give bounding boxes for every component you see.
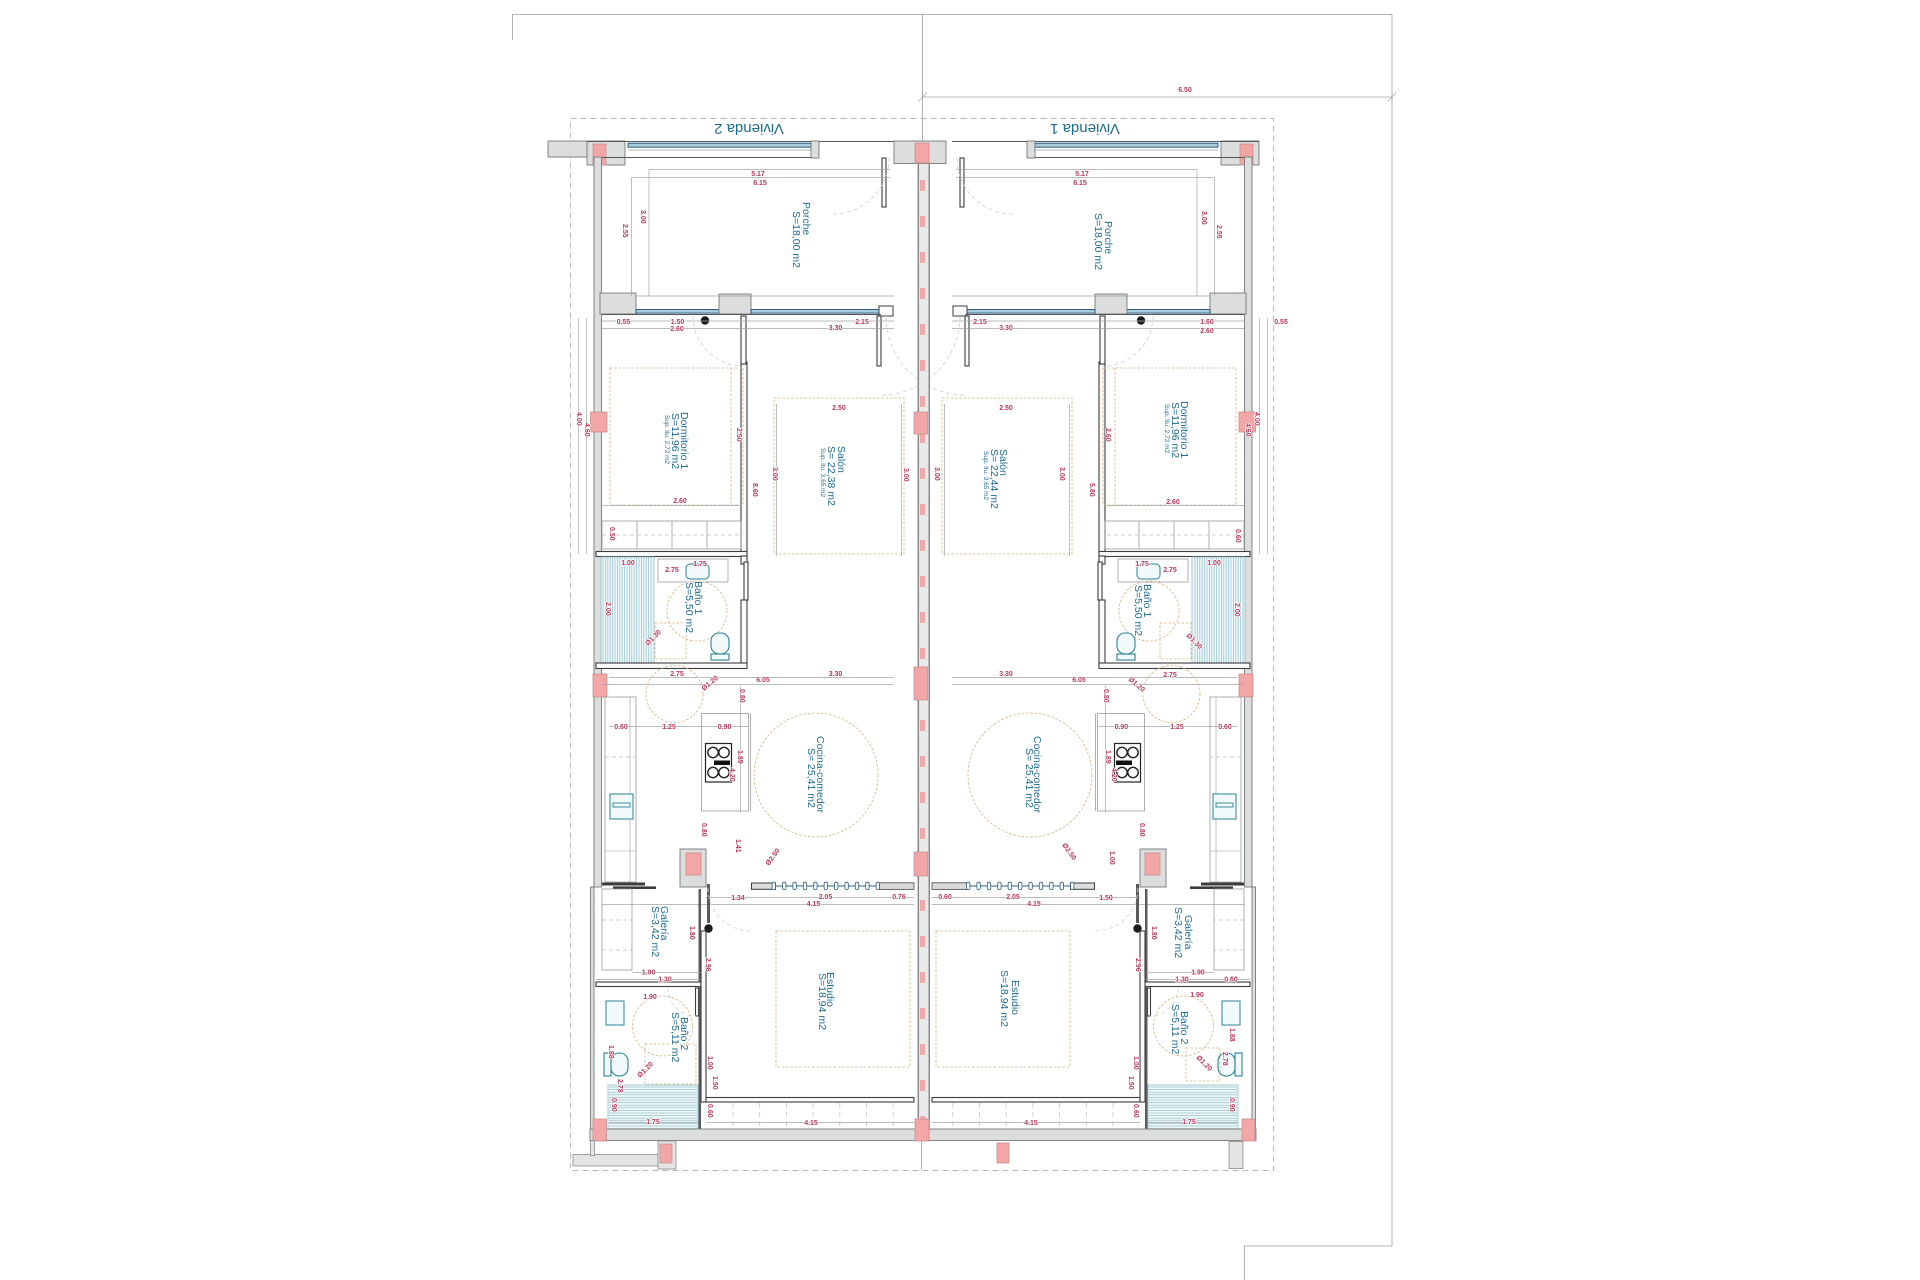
svg-text:5.17: 5.17: [751, 171, 765, 178]
svg-text:Sup. Ilu. 2,72 m2: Sup. Ilu. 2,72 m2: [663, 415, 670, 465]
svg-text:1.88: 1.88: [1228, 1028, 1235, 1042]
svg-text:Vivienda 1: Vivienda 1: [1050, 120, 1120, 137]
svg-text:0.90: 0.90: [1115, 724, 1129, 731]
svg-text:2.60: 2.60: [673, 498, 687, 505]
svg-text:2.75: 2.75: [670, 671, 684, 678]
svg-text:2.00: 2.00: [604, 602, 611, 616]
svg-text:S=5,50 m2: S=5,50 m2: [683, 582, 695, 633]
svg-text:6.05: 6.05: [1072, 677, 1086, 684]
svg-text:Vivienda 2: Vivienda 2: [714, 120, 784, 137]
svg-text:2.15: 2.15: [973, 319, 987, 326]
svg-text:3.30: 3.30: [999, 325, 1013, 332]
svg-text:0.76: 0.76: [892, 894, 906, 901]
svg-text:Sup. Ilu. 2,72 m2: Sup. Ilu. 2,72 m2: [1163, 404, 1170, 454]
svg-text:0.60: 0.60: [614, 724, 628, 731]
svg-text:1.75: 1.75: [1182, 1119, 1196, 1126]
svg-text:1.30: 1.30: [1175, 977, 1189, 984]
svg-text:2.60: 2.60: [1200, 328, 1214, 335]
svg-text:1.25: 1.25: [662, 724, 676, 731]
svg-text:1.00: 1.00: [621, 560, 635, 567]
svg-text:S=3,42 m2: S=3,42 m2: [1172, 907, 1184, 958]
svg-text:S= 25,41 m2: S= 25,41 m2: [805, 748, 817, 808]
svg-text:1.90: 1.90: [1190, 992, 1204, 999]
svg-text:S=3,42 m2: S=3,42 m2: [649, 906, 661, 957]
svg-text:3.00: 3.00: [933, 467, 940, 481]
svg-text:4.60: 4.60: [1244, 423, 1251, 437]
svg-text:6.15: 6.15: [1073, 180, 1087, 187]
svg-text:2.60: 2.60: [670, 326, 684, 333]
svg-text:2.60: 2.60: [1166, 499, 1180, 506]
svg-text:0.60: 0.60: [1224, 977, 1238, 984]
svg-text:1.75: 1.75: [646, 1119, 660, 1126]
svg-text:1.00: 1.00: [1207, 560, 1221, 567]
svg-text:2.50: 2.50: [735, 428, 742, 442]
svg-text:0.50: 0.50: [608, 527, 615, 541]
svg-text:Sup. Ilu. 3,65 m2: Sup. Ilu. 3,65 m2: [819, 448, 826, 498]
svg-text:2.75: 2.75: [665, 567, 679, 574]
svg-text:1.00: 1.00: [706, 1056, 713, 1070]
svg-text:8.60: 8.60: [751, 483, 758, 497]
svg-text:S=18,00 m2: S=18,00 m2: [1092, 213, 1104, 270]
svg-text:4.00: 4.00: [1253, 412, 1260, 426]
svg-text:0.80: 0.80: [700, 823, 707, 837]
svg-text:0.80: 0.80: [1102, 689, 1109, 703]
svg-text:0.90: 0.90: [1228, 1098, 1235, 1112]
svg-text:1.25: 1.25: [1170, 724, 1184, 731]
svg-text:S=18,94 m2: S=18,94 m2: [998, 970, 1010, 1027]
svg-text:2.00: 2.00: [1233, 603, 1240, 617]
svg-text:4.60: 4.60: [583, 423, 590, 437]
svg-text:4.20: 4.20: [728, 768, 735, 782]
svg-text:4.20: 4.20: [1110, 768, 1117, 782]
svg-text:5.80: 5.80: [1088, 483, 1095, 497]
svg-text:0.90: 0.90: [610, 1098, 617, 1112]
svg-text:3.00: 3.00: [902, 468, 909, 482]
svg-text:1.34: 1.34: [731, 895, 745, 902]
svg-text:0.60: 0.60: [1218, 724, 1232, 731]
svg-text:1.90: 1.90: [642, 970, 656, 977]
svg-text:3.30: 3.30: [999, 671, 1013, 678]
svg-text:2.50: 2.50: [832, 405, 846, 412]
svg-text:2.55: 2.55: [1215, 225, 1222, 239]
svg-text:1.90: 1.90: [643, 994, 657, 1001]
svg-text:S=5,11 m2: S=5,11 m2: [669, 1012, 681, 1062]
svg-text:0.80: 0.80: [1138, 823, 1145, 837]
svg-text:3.30: 3.30: [829, 325, 843, 332]
svg-text:0.60: 0.60: [1234, 529, 1241, 543]
svg-text:1.80: 1.80: [1150, 926, 1157, 940]
svg-text:6.15: 6.15: [753, 180, 767, 187]
svg-text:S=5,11 m2: S=5,11 m2: [1169, 1004, 1181, 1054]
svg-text:1.89: 1.89: [1104, 750, 1111, 764]
svg-text:0.90: 0.90: [718, 724, 732, 731]
svg-text:2.96: 2.96: [1134, 958, 1141, 972]
svg-text:4.00: 4.00: [575, 412, 582, 426]
svg-text:S=18,00 m2: S=18,00 m2: [790, 211, 802, 268]
svg-text:4.15: 4.15: [1027, 901, 1041, 908]
svg-text:2.78: 2.78: [616, 1079, 623, 1093]
svg-text:1.75: 1.75: [1135, 561, 1149, 568]
svg-text:1.60: 1.60: [1200, 319, 1214, 326]
svg-text:1.89: 1.89: [736, 750, 743, 764]
svg-text:0.60: 0.60: [706, 1104, 713, 1118]
svg-text:0.60: 0.60: [1132, 1104, 1139, 1118]
svg-text:2.55: 2.55: [621, 224, 628, 238]
svg-text:4.15: 4.15: [804, 1120, 818, 1127]
svg-text:3.00: 3.00: [1200, 211, 1207, 225]
svg-text:0.55: 0.55: [1274, 319, 1288, 326]
svg-text:1.00: 1.00: [1108, 851, 1115, 865]
svg-text:S= 25,41 m2: S= 25,41 m2: [1023, 748, 1035, 808]
svg-text:1.90: 1.90: [1191, 970, 1205, 977]
svg-text:1.50: 1.50: [671, 319, 685, 326]
svg-text:2.05: 2.05: [819, 894, 833, 901]
svg-text:3.00: 3.00: [1058, 467, 1065, 481]
svg-text:6.05: 6.05: [756, 677, 770, 684]
svg-text:4.15: 4.15: [1024, 1120, 1038, 1127]
svg-text:0.55: 0.55: [617, 319, 631, 326]
svg-text:5.17: 5.17: [1075, 171, 1089, 178]
svg-text:1.80: 1.80: [688, 926, 695, 940]
svg-text:2.78: 2.78: [1221, 1052, 1228, 1066]
svg-text:1.00: 1.00: [1132, 1056, 1139, 1070]
svg-text:1.30: 1.30: [658, 977, 672, 984]
svg-text:1.88: 1.88: [607, 1045, 614, 1059]
svg-text:2.96: 2.96: [704, 958, 711, 972]
svg-text:2.50: 2.50: [999, 405, 1013, 412]
svg-text:0.80: 0.80: [738, 689, 745, 703]
svg-text:1.50: 1.50: [1127, 1076, 1134, 1090]
svg-text:2.15: 2.15: [855, 319, 869, 326]
svg-text:2.75: 2.75: [1163, 567, 1177, 574]
svg-text:2.05: 2.05: [1006, 894, 1020, 901]
svg-text:0.60: 0.60: [938, 894, 952, 901]
svg-text:4.15: 4.15: [807, 901, 821, 908]
svg-text:1.50: 1.50: [711, 1076, 718, 1090]
svg-text:S=5,50 m2: S=5,50 m2: [1132, 585, 1144, 636]
svg-text:1.75: 1.75: [693, 561, 707, 568]
svg-text:Sup. Ilu. 3,65 m2: Sup. Ilu. 3,65 m2: [982, 451, 989, 501]
svg-text:6.50: 6.50: [1178, 87, 1192, 94]
svg-text:3.00: 3.00: [639, 210, 646, 224]
svg-text:3.00: 3.00: [771, 467, 778, 481]
svg-text:2.75: 2.75: [1163, 672, 1177, 679]
svg-text:1.50: 1.50: [1099, 895, 1113, 902]
svg-text:3.30: 3.30: [829, 671, 843, 678]
svg-text:S=18,94 m2: S=18,94 m2: [816, 973, 828, 1030]
svg-text:1.41: 1.41: [734, 839, 741, 853]
svg-text:2.60: 2.60: [1104, 428, 1111, 442]
